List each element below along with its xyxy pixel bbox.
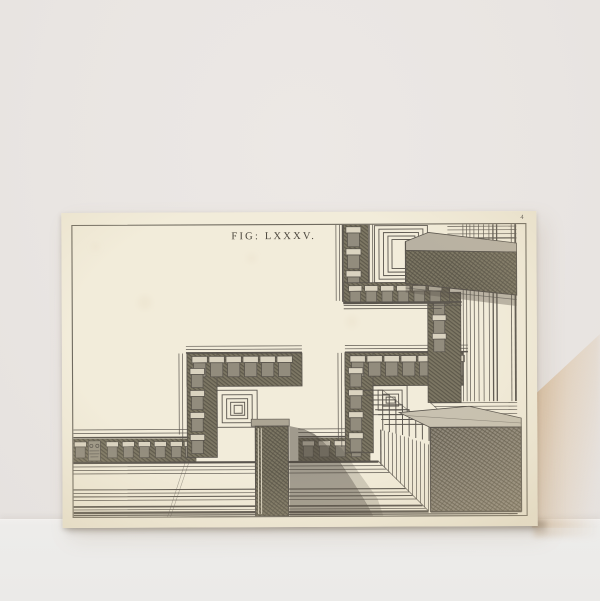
paper-aging bbox=[61, 211, 537, 528]
art-print: FIG: LXXXV. 4 bbox=[61, 211, 537, 528]
plate-number: 4 bbox=[520, 214, 523, 221]
scene: FIG: LXXXV. 4 bbox=[0, 0, 600, 600]
engraving-figure bbox=[61, 211, 537, 528]
figure-caption: FIG: LXXXV. bbox=[231, 231, 391, 243]
